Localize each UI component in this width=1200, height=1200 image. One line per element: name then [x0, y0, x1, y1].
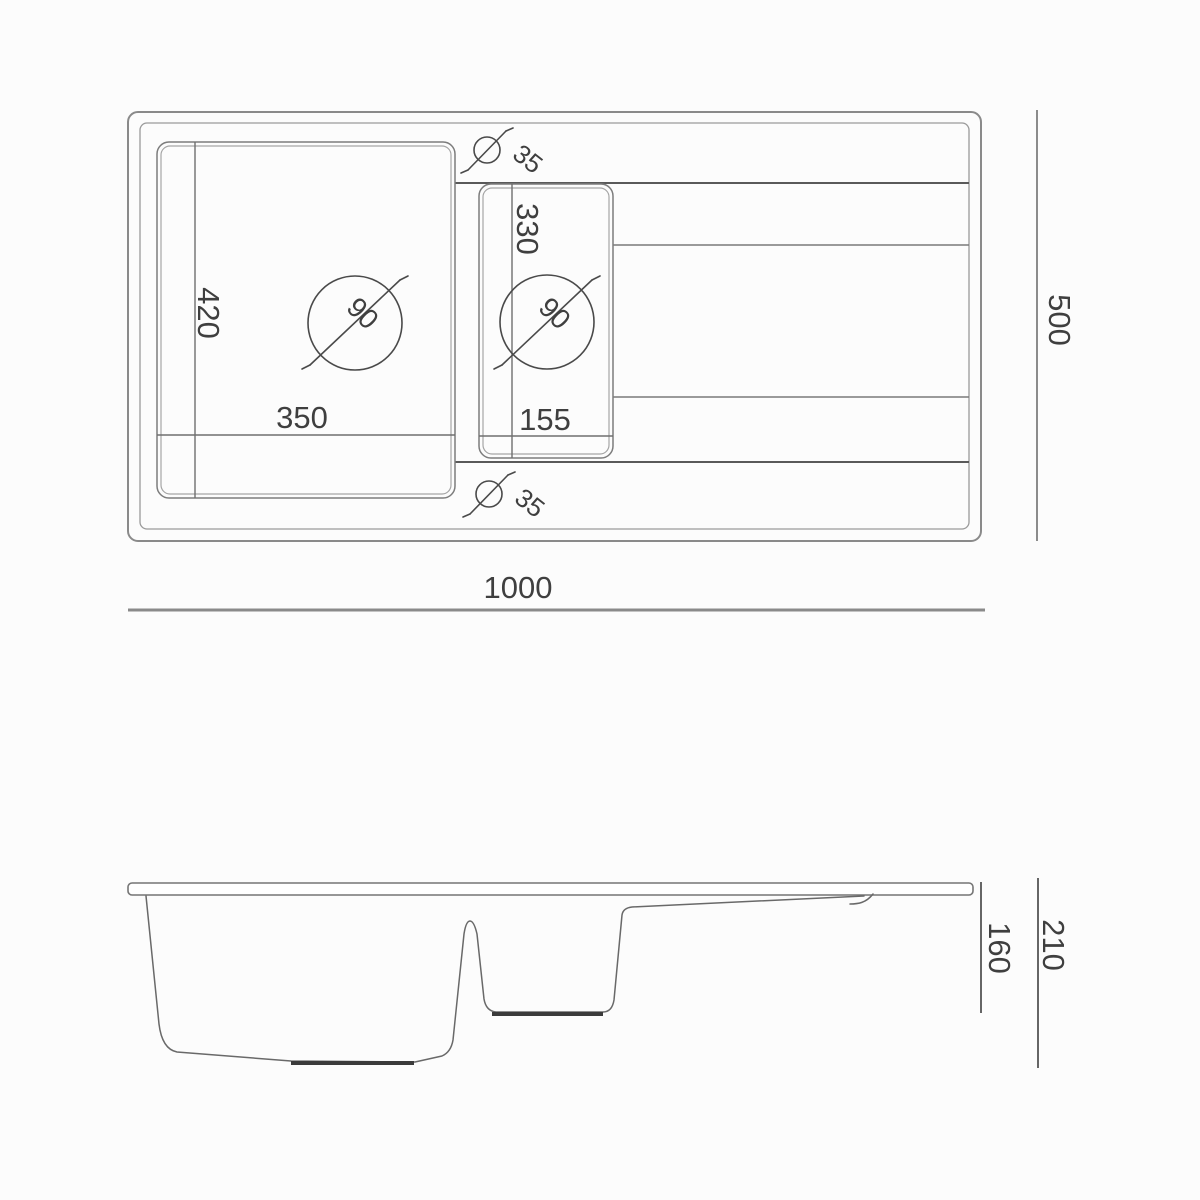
small-bowl-depth-label: 330	[510, 203, 545, 255]
small-bowl-width-label: 155	[519, 402, 571, 437]
main-bowl-depth-label: 420	[191, 287, 226, 339]
small-bowl-drain-slash-tick-low	[494, 365, 502, 369]
main-bowl-drain-slash-tick-low	[302, 365, 310, 369]
depth-dimension: 500	[1037, 110, 1077, 541]
bowl-depth-label: 160	[982, 922, 1017, 974]
top-drain-hole-slash-tick-high	[506, 128, 513, 131]
bottom-drain-hole-label: 35	[509, 482, 550, 523]
bottom-drain-hole-slash-tick-high	[508, 472, 515, 475]
bowl-depth-dimension: 160	[981, 882, 1017, 1013]
top-drain-hole-slash-tick-low	[461, 170, 468, 173]
bottom-drain-hole-slash-tick-low	[463, 514, 470, 517]
main-bowl: 90 350 420	[157, 142, 455, 498]
width-dimension-label: 1000	[484, 570, 553, 605]
body-profile	[146, 896, 864, 1062]
total-height-label: 210	[1036, 919, 1071, 971]
total-height-dimension: 210	[1036, 878, 1071, 1068]
small-bowl-drain-slash-tick-high	[592, 276, 600, 280]
rim-bar	[128, 883, 973, 895]
depth-dimension-label: 500	[1042, 294, 1077, 346]
bottom-drain-hole-callout: 35	[463, 472, 551, 524]
top-view: 90 350 420 90 155 330 35	[128, 110, 1077, 610]
top-drain-hole-label: 35	[507, 138, 548, 179]
main-bowl-width-label: 350	[276, 400, 328, 435]
main-bowl-drain-slash-tick-high	[400, 276, 408, 280]
width-dimension: 1000	[128, 570, 985, 610]
sink-technical-drawing: 90 350 420 90 155 330 35	[0, 0, 1200, 1200]
side-view: 160 210	[128, 878, 1071, 1068]
top-drain-hole-callout: 35	[461, 128, 549, 180]
drawing-svg: 90 350 420 90 155 330 35	[0, 0, 1200, 1200]
small-bowl: 90 155 330	[479, 184, 613, 458]
